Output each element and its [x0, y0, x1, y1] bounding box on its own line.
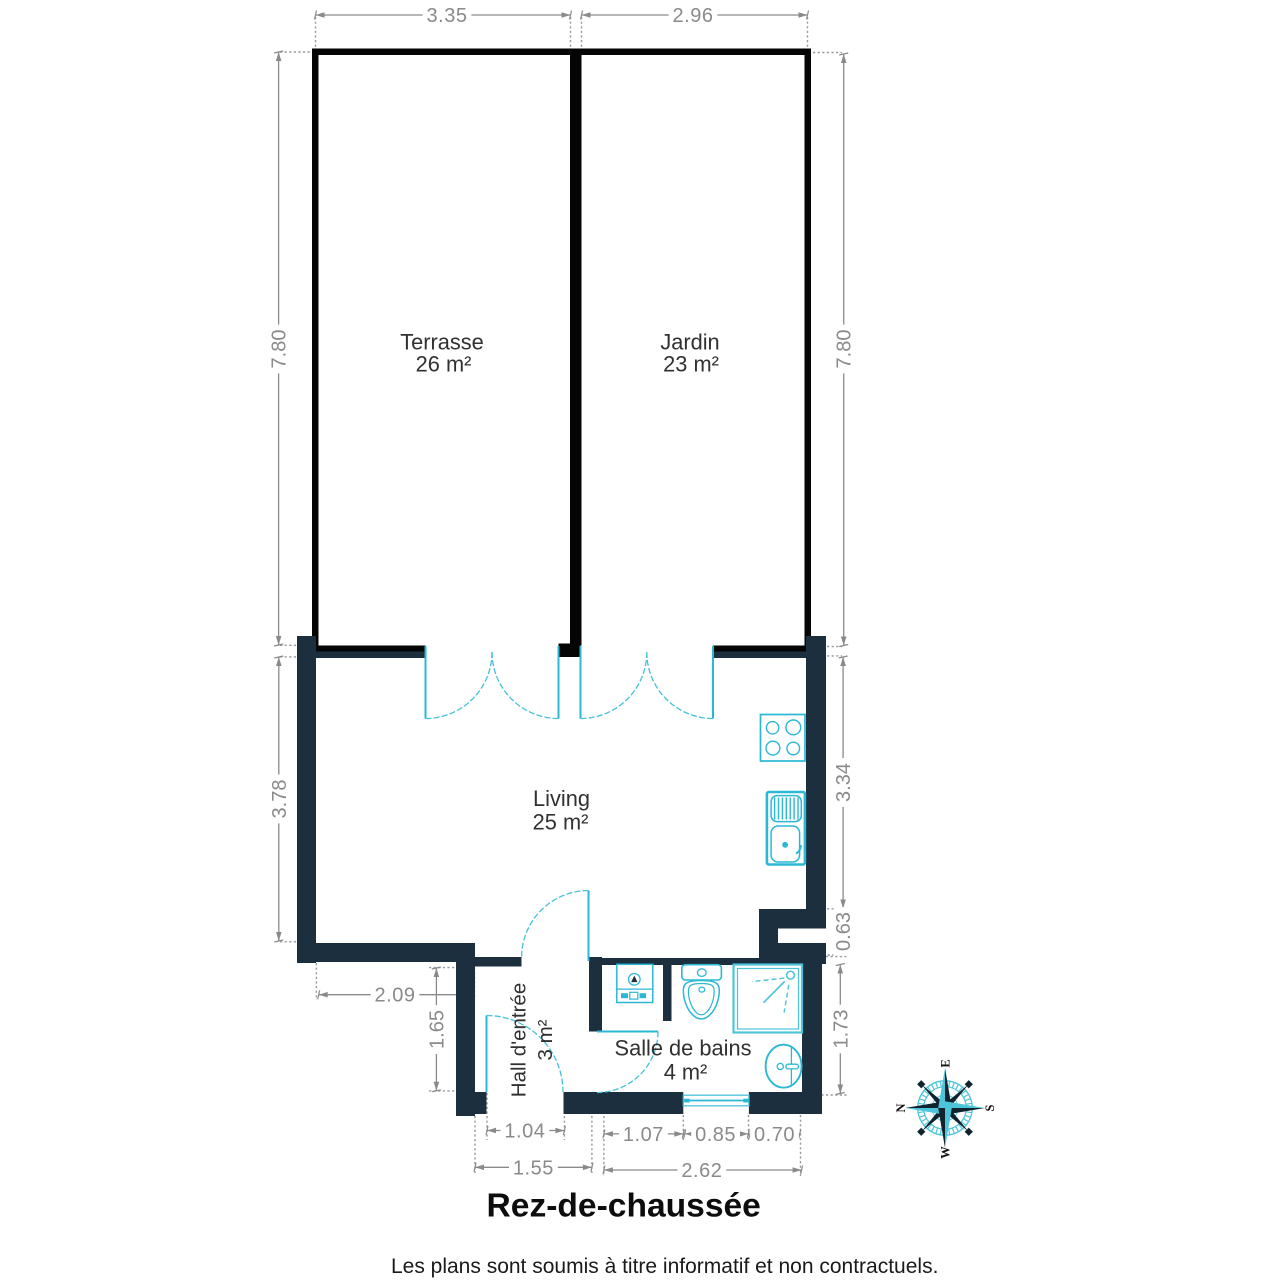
svg-text:Salle de bains: Salle de bains: [615, 1036, 752, 1061]
svg-text:1.04: 1.04: [504, 1121, 545, 1143]
svg-text:Living: Living: [533, 786, 590, 811]
svg-text:Terrasse: Terrasse: [400, 329, 484, 354]
svg-text:7.80: 7.80: [269, 330, 291, 369]
svg-text:W: W: [939, 1146, 953, 1159]
svg-text:0.70: 0.70: [754, 1124, 795, 1146]
svg-text:1.73: 1.73: [830, 1010, 852, 1049]
svg-text:Rez-de-chaussée: Rez-de-chaussée: [487, 1188, 761, 1225]
svg-text:4 m²: 4 m²: [664, 1060, 708, 1085]
svg-text:2.09: 2.09: [375, 985, 416, 1007]
svg-text:Les plans sont soumis à titre: Les plans sont soumis à titre informatif…: [391, 1255, 938, 1278]
svg-text:7.80: 7.80: [834, 330, 856, 369]
svg-text:3 m²: 3 m²: [534, 1019, 557, 1060]
svg-text:Hall d'entrée: Hall d'entrée: [508, 983, 531, 1097]
svg-text:1.07: 1.07: [623, 1124, 664, 1146]
svg-text:25 m²: 25 m²: [533, 810, 589, 835]
svg-text:S: S: [983, 1104, 997, 1111]
svg-text:N: N: [894, 1103, 908, 1112]
svg-text:2.96: 2.96: [673, 5, 714, 27]
svg-text:0.63: 0.63: [833, 912, 855, 951]
svg-text:3.35: 3.35: [427, 5, 468, 27]
svg-text:26 m²: 26 m²: [416, 352, 472, 377]
svg-text:3.34: 3.34: [833, 763, 855, 802]
svg-text:3.78: 3.78: [269, 780, 291, 819]
svg-text:1.65: 1.65: [426, 1010, 448, 1049]
svg-text:Jardin: Jardin: [660, 329, 719, 354]
svg-text:E: E: [939, 1059, 953, 1067]
svg-text:0.85: 0.85: [695, 1124, 736, 1146]
svg-text:1.55: 1.55: [513, 1157, 554, 1179]
svg-text:2.62: 2.62: [681, 1160, 722, 1182]
svg-text:23 m²: 23 m²: [663, 352, 719, 377]
